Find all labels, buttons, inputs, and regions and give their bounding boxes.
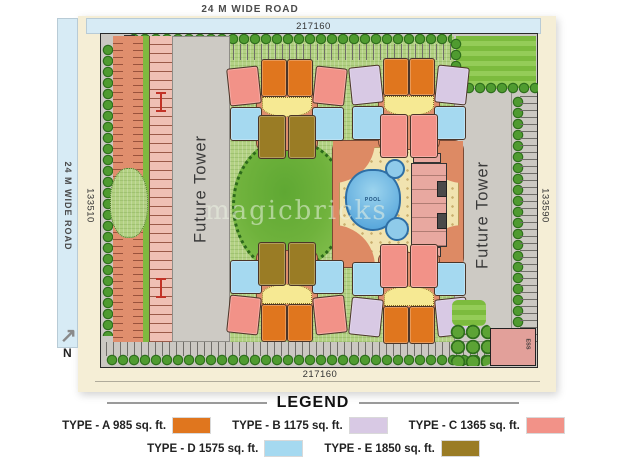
north-label: N (63, 346, 72, 360)
legend-label-type-E: TYPE - E 1850 sq. ft. (324, 443, 435, 455)
legend-item-type-B: TYPE - B 1175 sq. ft. (232, 418, 387, 433)
left-green-bulge (110, 168, 148, 238)
pool-small-circle-top (385, 159, 405, 179)
ess-bushes (450, 324, 492, 366)
future-tower-right-label: Future Tower (474, 161, 493, 269)
dimension-left: 133510 (85, 184, 96, 228)
top-right-lawn-bushes (452, 82, 538, 94)
dimension-right: 133590 (540, 184, 551, 228)
legend-title-row: LEGEND (0, 394, 626, 412)
legend-swatch-type-A (173, 418, 210, 433)
parking-marker-1 (156, 92, 166, 112)
legend-item-type-A: TYPE - A 985 sq. ft. (62, 418, 210, 433)
legend-swatch-type-B (350, 418, 387, 433)
legend-title: LEGEND (277, 394, 350, 412)
legend-swatch-type-D (265, 441, 302, 456)
legend-swatch-type-E (442, 441, 479, 456)
future-tower-left-label: Future Tower (192, 135, 211, 243)
site-plan-screenshot: 24 M WIDE ROAD 217160 24 M WIDE ROAD 133… (0, 0, 626, 470)
legend-item-type-E: TYPE - E 1850 sq. ft. (324, 441, 479, 456)
clubhouse-main (411, 163, 447, 247)
left-parking-grid (149, 36, 172, 342)
legend-row-2: TYPE - D 1575 sq. ft.TYPE - E 1850 sq. f… (0, 441, 626, 456)
legend-label-type-D: TYPE - D 1575 sq. ft. (147, 443, 258, 455)
right-parking-ticks (520, 96, 537, 342)
clubhouse-bottom-block (413, 247, 441, 257)
legend-line-right (359, 402, 519, 404)
clubhouse-dark-block-2 (437, 213, 447, 229)
future-tower-left: Future Tower (172, 36, 230, 342)
ess-label: ESS (524, 338, 530, 349)
north-arrow-icon: ↗ (60, 326, 77, 346)
top-road-band: 217160 (86, 18, 541, 34)
ess-lawn-patch (452, 300, 486, 326)
legend-row-1: TYPE - A 985 sq. ft.TYPE - B 1175 sq. ft… (0, 418, 626, 433)
left-road-label: 24 M WIDE ROAD (63, 141, 73, 271)
legend-item-type-C: TYPE - C 1365 sq. ft. (409, 418, 564, 433)
legend-swatch-type-C (527, 418, 564, 433)
top-right-lawn-bushes-left (450, 38, 462, 88)
legend-label-type-B: TYPE - B 1175 sq. ft. (232, 420, 343, 432)
ess-building: ESS (490, 328, 536, 366)
pool-small-circle-bottom (385, 217, 409, 241)
dimension-top: 217160 (296, 21, 331, 32)
top-road-label: 24 M WIDE ROAD (150, 4, 350, 15)
left-road-band: 24 M WIDE ROAD (57, 18, 78, 348)
dimension-bottom: 217160 (250, 369, 390, 380)
legend-label-type-A: TYPE - A 985 sq. ft. (62, 420, 166, 432)
parking-marker-2 (156, 278, 166, 298)
clubhouse-dark-block-1 (437, 181, 447, 197)
legend-line-left (107, 402, 267, 404)
legend-label-type-C: TYPE - C 1365 sq. ft. (409, 420, 520, 432)
plan-bottom-edge (95, 381, 540, 382)
clubhouse-top-block (413, 153, 441, 163)
top-right-lawn (456, 36, 536, 88)
legend-item-type-D: TYPE - D 1575 sq. ft. (147, 441, 302, 456)
watermark: magicbricks (205, 196, 388, 226)
